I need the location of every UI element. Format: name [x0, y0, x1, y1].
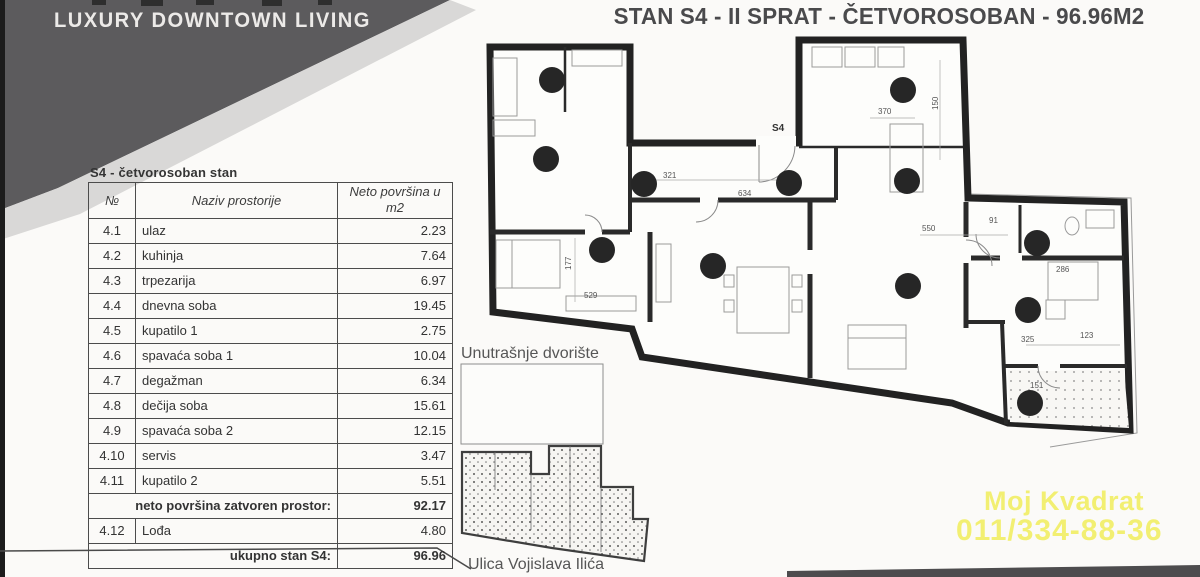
table-row: 4.11 kupatilo 2 5.51: [89, 468, 453, 493]
dim-label: 325: [1021, 335, 1035, 344]
site-plan: [461, 364, 648, 561]
table-row: 4.1 ulaz 2.23: [89, 218, 453, 243]
entrance-label: S4: [772, 123, 785, 134]
cell-no: 4.8: [89, 393, 136, 418]
dim-label: 151: [1030, 381, 1044, 390]
room-marker: [533, 146, 559, 172]
watermark-agency-name: Moj Kvadrat: [984, 486, 1144, 517]
cell-name: dnevna soba: [136, 293, 338, 318]
dim-label: 321: [663, 171, 677, 180]
cell-no: 4.7: [89, 368, 136, 393]
total-label: ukupno stan S4:: [89, 543, 338, 568]
cell-name: kupatilo 1: [136, 318, 338, 343]
table-row: 4.3 trpezarija 6.97: [89, 268, 453, 293]
col-header-area: Neto površina u m2: [338, 183, 453, 219]
cell-no: 4.4: [89, 293, 136, 318]
cell-no: 4.10: [89, 443, 136, 468]
cell-name: ulaz: [136, 218, 338, 243]
dim-label: 123: [1080, 331, 1094, 340]
col-header-name: Naziv prostorije: [136, 183, 338, 219]
watermark-phone-number: 011/334-88-36: [956, 514, 1163, 548]
scanned-floorplan-sheet: { "banner": { "title": "LUXURY DOWNTOWN …: [0, 0, 1200, 577]
cell-area: 4.80: [338, 518, 453, 543]
room-marker: [1024, 230, 1050, 256]
table-row: 4.8 dečija soba 15.61: [89, 393, 453, 418]
table-row: 4.2 kuhinja 7.64: [89, 243, 453, 268]
cell-area: 3.47: [338, 443, 453, 468]
table-row: 4.4 dnevna soba 19.45: [89, 293, 453, 318]
dim-label: 286: [1056, 265, 1070, 274]
dim-label: 177: [564, 256, 573, 270]
dim-label: 91: [989, 216, 998, 225]
cell-name: Lođa: [136, 518, 338, 543]
cell-name: kupatilo 2: [136, 468, 338, 493]
cell-area: 10.04: [338, 343, 453, 368]
cell-area: 6.97: [338, 268, 453, 293]
cell-area: 5.51: [338, 468, 453, 493]
left-edge-strip: [0, 0, 5, 577]
table-header-row: № Naziv prostorije Neto površina u m2: [89, 183, 453, 219]
dim-label: 370: [878, 107, 892, 116]
cell-name: degažman: [136, 368, 338, 393]
cell-area: 2.23: [338, 218, 453, 243]
cell-name: spavaća soba 2: [136, 418, 338, 443]
dim-label: 150: [931, 96, 940, 110]
street-label: Ulica Vojislava Ilića: [468, 556, 604, 574]
room-marker: [894, 168, 920, 194]
page-title: STAN S4 - II SPRAT - ČETVOROSOBAN - 96.9…: [565, 3, 1194, 30]
room-areas-table: № Naziv prostorije Neto površina u m2 4.…: [88, 182, 453, 569]
subtotal-value: 92.17: [338, 493, 453, 518]
room-marker: [776, 170, 802, 196]
cell-area: 6.34: [338, 368, 453, 393]
room-marker: [1015, 297, 1041, 323]
cell-no: 4.12: [89, 518, 136, 543]
room-marker: [895, 273, 921, 299]
dim-label: 634: [738, 189, 752, 198]
table-caption: S4 - četvorosoban stan: [90, 165, 237, 180]
banner-title: LUXURY DOWNTOWN LIVING: [54, 9, 371, 33]
cell-no: 4.5: [89, 318, 136, 343]
subtotal-label: neto površina zatvoren prostor:: [89, 493, 338, 518]
cell-area: 2.75: [338, 318, 453, 343]
cell-area: 12.15: [338, 418, 453, 443]
room-marker: [1017, 390, 1043, 416]
table-row: 4.7 degažman 6.34: [89, 368, 453, 393]
total-row: ukupno stan S4: 96.96: [89, 543, 453, 568]
cell-no: 4.1: [89, 218, 136, 243]
building-footprint: [462, 446, 648, 561]
cell-name: kuhinja: [136, 243, 338, 268]
table-row: 4.12 Lođa 4.80: [89, 518, 453, 543]
cell-area: 15.61: [338, 393, 453, 418]
dim-label: 529: [584, 291, 598, 300]
table-row: 4.10 servis 3.47: [89, 443, 453, 468]
cell-no: 4.11: [89, 468, 136, 493]
courtyard-label: Unutrašnje dvorište: [461, 345, 599, 363]
room-marker: [589, 237, 615, 263]
bottom-dark-bar: [787, 565, 1200, 577]
table-row: 4.9 spavaća soba 2 12.15: [89, 418, 453, 443]
cell-area: 19.45: [338, 293, 453, 318]
subtotal-row: neto površina zatvoren prostor: 92.17: [89, 493, 453, 518]
cell-name: spavaća soba 1: [136, 343, 338, 368]
room-marker: [539, 67, 565, 93]
cell-area: 7.64: [338, 243, 453, 268]
cell-no: 4.2: [89, 243, 136, 268]
cell-no: 4.6: [89, 343, 136, 368]
courtyard-outline: [461, 364, 603, 444]
table-row: 4.6 spavaća soba 1 10.04: [89, 343, 453, 368]
col-header-no: №: [89, 183, 136, 219]
cell-name: trpezarija: [136, 268, 338, 293]
room-marker: [890, 77, 916, 103]
total-value: 96.96: [338, 543, 453, 568]
cell-no: 4.9: [89, 418, 136, 443]
room-marker: [700, 253, 726, 279]
cell-no: 4.3: [89, 268, 136, 293]
table-row: 4.5 kupatilo 1 2.75: [89, 318, 453, 343]
cell-name: servis: [136, 443, 338, 468]
room-marker: [631, 171, 657, 197]
dim-label: 550: [922, 224, 936, 233]
cell-name: dečija soba: [136, 393, 338, 418]
